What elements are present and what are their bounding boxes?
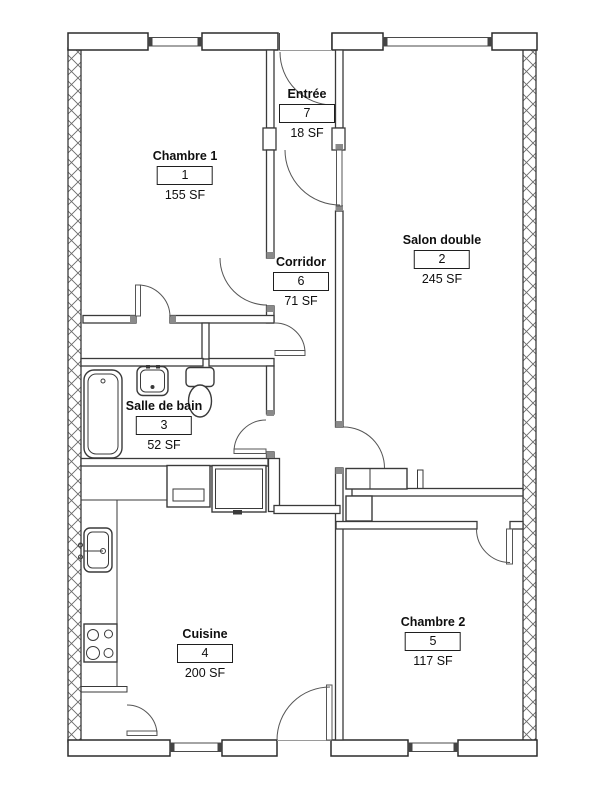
chambre1-door — [220, 258, 267, 305]
room-area: 71 SF — [273, 294, 329, 309]
kitchen-sink — [79, 528, 113, 572]
room-number-box: 1 — [157, 166, 213, 185]
room-number: 1 — [182, 168, 189, 182]
kitchen-fixtures — [79, 466, 267, 687]
room-number: 3 — [161, 418, 168, 432]
bathroom-door — [234, 420, 266, 454]
room-number-box: 3 — [136, 416, 192, 435]
room-label-chambre2: Chambre 2 5 117 SF — [401, 615, 466, 669]
window-chambre1 — [148, 38, 202, 47]
room-label-cuisine: Cuisine 4 200 SF — [177, 627, 233, 681]
room-number: 7 — [304, 106, 311, 120]
room-name: Chambre 2 — [401, 615, 466, 629]
window-cuisine — [170, 743, 222, 752]
hall-door — [275, 323, 305, 356]
room-label-salle-de-bain: Salle de bain 3 52 SF — [126, 399, 202, 453]
room-label-corridor: Corridor 6 71 SF — [273, 255, 329, 309]
room-number-box: 6 — [273, 272, 329, 291]
room-label-entree: Entrée 7 18 SF — [279, 87, 335, 141]
closet-box — [346, 469, 423, 490]
room-name: Salon double — [403, 233, 481, 247]
chambre1-closet-door — [136, 285, 171, 317]
room-number: 6 — [298, 274, 305, 288]
room-name: Chambre 1 — [153, 149, 218, 163]
room-number-box: 7 — [279, 104, 335, 123]
room-name: Salle de bain — [126, 399, 202, 413]
room-name: Cuisine — [177, 627, 233, 641]
bathroom-sink — [137, 365, 168, 396]
salon-lower-door — [344, 427, 385, 468]
room-label-salon: Salon double 2 245 SF — [403, 233, 481, 287]
window-chambre2 — [408, 743, 458, 752]
room-area: 200 SF — [177, 666, 233, 681]
kitchen-exterior-door — [277, 685, 332, 740]
room-number: 2 — [439, 252, 446, 266]
room-name: Corridor — [273, 255, 329, 269]
counter-return — [81, 687, 127, 693]
closet-box-small — [346, 496, 372, 521]
washer — [167, 466, 210, 508]
right-wall-hatched — [523, 48, 536, 742]
room-area: 155 SF — [153, 188, 218, 203]
fridge — [212, 466, 266, 515]
bathtub — [84, 370, 122, 458]
stove — [84, 624, 117, 662]
left-wall-hatched — [68, 48, 81, 742]
room-number: 4 — [202, 646, 209, 660]
room-number-box: 4 — [177, 644, 233, 663]
room-name: Entrée — [279, 87, 335, 101]
room-area: 52 SF — [126, 438, 202, 453]
salon-upper-door — [285, 150, 342, 206]
room-label-chambre1: Chambre 1 1 155 SF — [153, 149, 218, 203]
room-area: 117 SF — [401, 654, 466, 669]
room-area: 245 SF — [403, 272, 481, 287]
window-salon — [383, 38, 492, 47]
room-number: 5 — [430, 634, 437, 648]
kitchen-counter-door — [127, 705, 157, 736]
room-number-box: 5 — [405, 632, 461, 651]
room-area: 18 SF — [279, 126, 335, 141]
room-number-box: 2 — [414, 250, 470, 269]
exterior-walls — [68, 33, 537, 756]
chambre2-door — [477, 529, 513, 564]
floor-plan: Chambre 1 1 155 SF Entrée 7 18 SF Salon … — [0, 0, 612, 792]
